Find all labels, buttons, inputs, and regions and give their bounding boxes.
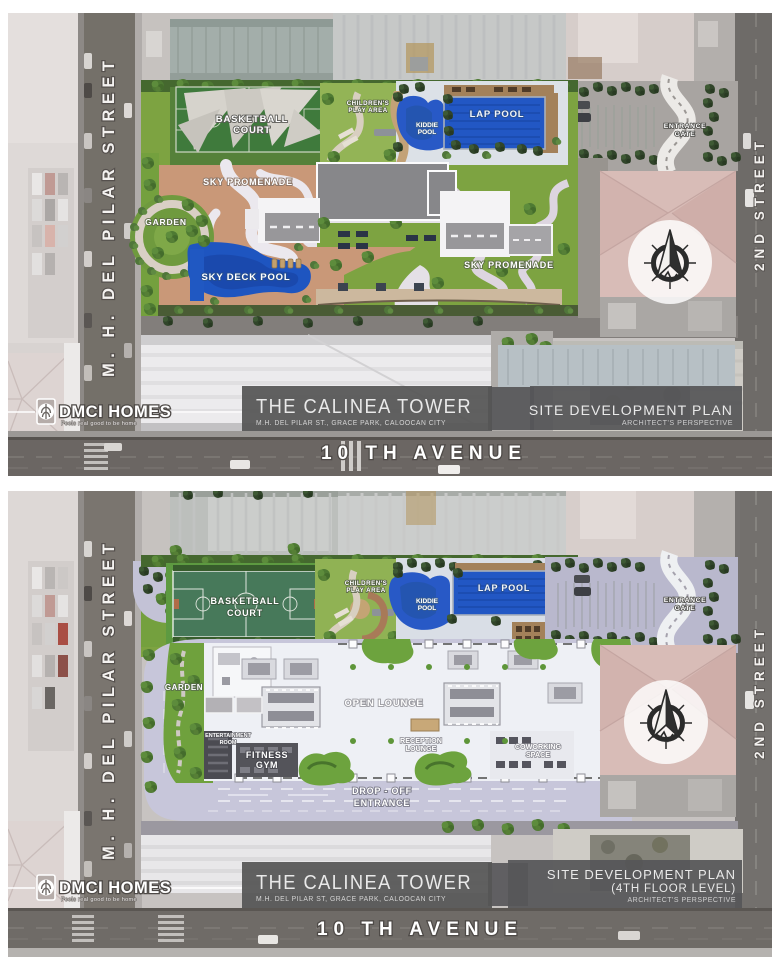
svg-text:SITE DEVELOPMENT PLAN: SITE DEVELOPMENT PLAN (529, 402, 733, 418)
svg-text:SKY DECK POOL: SKY DECK POOL (202, 272, 291, 283)
svg-text:M. H. DEL PILAR STREET: M. H. DEL PILAR STREET (100, 56, 118, 377)
svg-text:ARCHITECT'S PERSPECTIVE: ARCHITECT'S PERSPECTIVE (622, 418, 733, 427)
svg-text:SKY PROMENADE: SKY PROMENADE (203, 177, 293, 187)
svg-text:ENTERTAINMENT: ENTERTAINMENT (205, 733, 251, 739)
svg-text:ARCHITECT'S PERSPECTIVE: ARCHITECT'S PERSPECTIVE (627, 897, 736, 904)
svg-text:DMCI HOMES: DMCI HOMES (59, 879, 171, 897)
svg-text:SITE DEVELOPMENT PLAN: SITE DEVELOPMENT PLAN (547, 867, 736, 882)
svg-text:FITNESS: FITNESS (246, 750, 288, 760)
svg-text:COURT: COURT (233, 125, 271, 136)
svg-text:THE CALINEA TOWER: THE CALINEA TOWER (256, 395, 472, 418)
svg-text:GATE: GATE (675, 131, 696, 138)
svg-text:CHILDREN'S: CHILDREN'S (345, 580, 388, 587)
svg-text:BASKETBALL: BASKETBALL (216, 114, 288, 125)
svg-text:POOL: POOL (418, 129, 436, 136)
svg-text:LAP POOL: LAP POOL (470, 109, 525, 120)
svg-text:ENTRANCE: ENTRANCE (354, 798, 410, 808)
svg-text:GATE: GATE (675, 605, 696, 612)
svg-text:KIDDIE: KIDDIE (416, 598, 439, 605)
svg-text:SKY PROMENADE: SKY PROMENADE (464, 260, 554, 270)
svg-text:PLAY AREA: PLAY AREA (348, 107, 387, 114)
svg-text:KIDDIE: KIDDIE (416, 122, 439, 129)
svg-text:THE CALINEA TOWER: THE CALINEA TOWER (256, 871, 472, 894)
svg-text:COURT: COURT (227, 608, 263, 618)
svg-text:DROP - OFF: DROP - OFF (352, 786, 412, 796)
svg-text:LOUNGE: LOUNGE (406, 744, 437, 753)
svg-text:(4TH FLOOR LEVEL): (4TH FLOOR LEVEL) (611, 883, 736, 895)
svg-text:ENTRANCE: ENTRANCE (664, 597, 707, 604)
svg-text:SPACE: SPACE (526, 750, 550, 759)
svg-text:Feels real good to be home: Feels real good to be home (61, 421, 137, 427)
svg-text:GYM: GYM (256, 760, 278, 770)
svg-text:Feels real good to be home: Feels real good to be home (61, 897, 137, 903)
svg-text:OPEN LOUNGE: OPEN LOUNGE (344, 698, 423, 709)
svg-text:M.H. DEL PILAR ST, GRACE PARK,: M.H. DEL PILAR ST, GRACE PARK, CALOOCAN … (256, 894, 446, 903)
svg-text:2ND STREET: 2ND STREET (752, 137, 767, 271)
svg-text:POOL: POOL (418, 605, 436, 612)
svg-text:CHILDREN'S: CHILDREN'S (347, 100, 390, 107)
svg-text:2ND STREET: 2ND STREET (752, 625, 767, 759)
svg-text:M.H. DEL PILAR ST., GRACE PARK: M.H. DEL PILAR ST., GRACE PARK, CALOOCAN… (256, 418, 446, 427)
svg-text:10 TH AVENUE: 10 TH AVENUE (321, 443, 527, 464)
svg-text:DMCI HOMES: DMCI HOMES (59, 403, 171, 421)
svg-text:GARDEN: GARDEN (165, 683, 203, 692)
svg-text:LAP POOL: LAP POOL (478, 583, 530, 593)
svg-text:GARDEN: GARDEN (145, 217, 187, 227)
svg-text:ENTRANCE: ENTRANCE (664, 123, 707, 130)
svg-text:BASKETBALL: BASKETBALL (211, 596, 280, 606)
svg-text:10 TH AVENUE: 10 TH AVENUE (317, 919, 523, 940)
svg-text:ROOM: ROOM (220, 740, 237, 746)
svg-text:PLAY AREA: PLAY AREA (346, 587, 385, 594)
svg-text:M. H. DEL PILAR STREET: M. H. DEL PILAR STREET (100, 539, 118, 860)
